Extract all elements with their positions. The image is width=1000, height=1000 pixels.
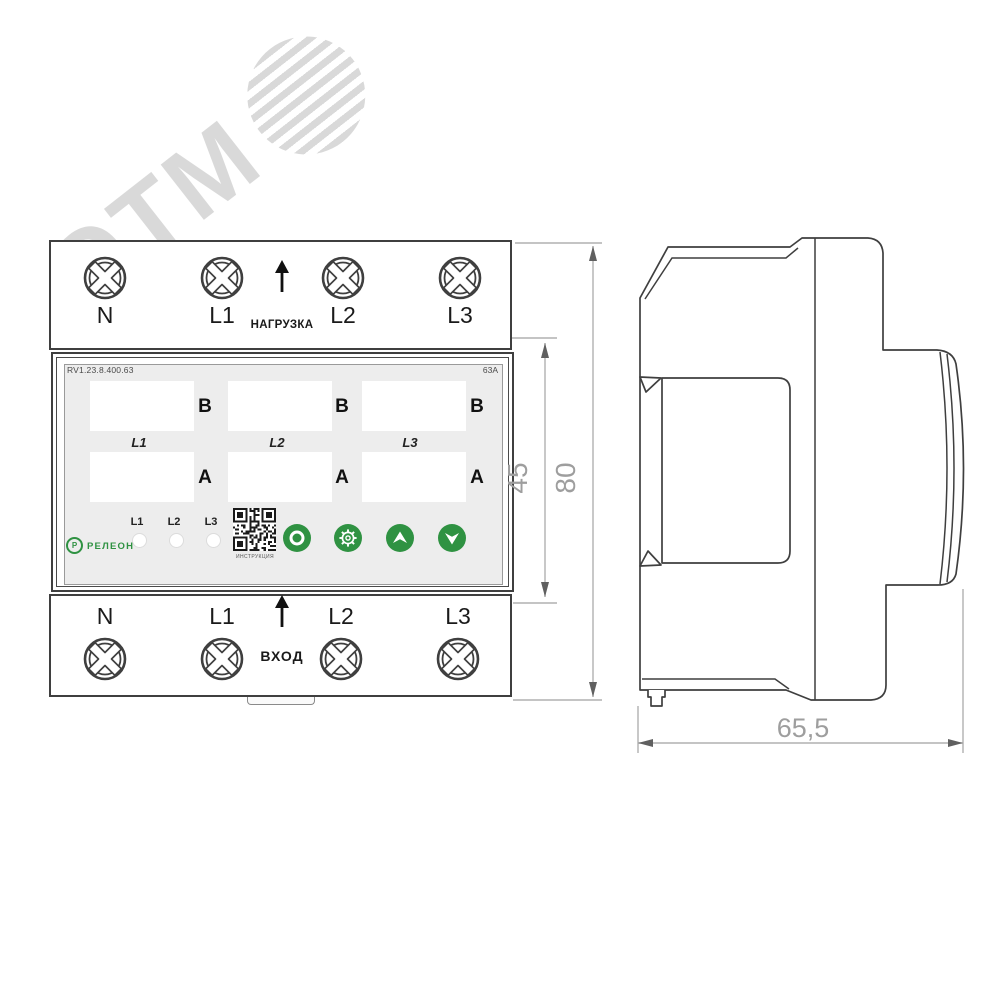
voltage-unit-label: В [332, 396, 352, 418]
arrow-up-icon [390, 528, 410, 548]
terminal-label-l3: L3 [423, 603, 493, 630]
phase-label-l3: L3 [390, 435, 430, 450]
screw-terminal-icon [437, 255, 483, 301]
led-indicator-l2 [169, 533, 184, 548]
led-label-l2: L2 [161, 516, 187, 528]
screw-terminal-icon [199, 255, 245, 301]
led-indicator-l1 [132, 533, 147, 548]
side-clip-tab [648, 690, 665, 706]
down-button[interactable] [438, 524, 466, 552]
led-label-l1: L1 [124, 516, 150, 528]
current-display-l2 [228, 452, 332, 502]
phase-label-l2: L2 [257, 435, 297, 450]
current-display-l1 [90, 452, 194, 502]
terminal-label-n: N [70, 302, 140, 329]
voltage-unit-label: В [467, 396, 487, 418]
dimension-depth-label: 65,5 [777, 713, 830, 743]
technical-drawing: ЭТМ N L1 L2 L3 НАГРУЗКА RV1.23.8.400.63 … [0, 0, 1000, 1000]
voltage-display-l2 [228, 381, 332, 431]
load-section-label: НАГРУЗКА [237, 319, 327, 331]
up-button[interactable] [386, 524, 414, 552]
ring-icon [287, 528, 307, 548]
screw-terminal-icon [82, 255, 128, 301]
brand-name: РЕЛЕОН [87, 541, 134, 552]
current-unit-label: А [467, 467, 487, 489]
voltage-display-l1 [90, 381, 194, 431]
terminal-label-n: N [70, 603, 140, 630]
input-section-label: ВХОД [247, 648, 317, 664]
screw-terminal-icon [199, 636, 245, 682]
qr-code [233, 508, 276, 551]
gear-icon [338, 528, 358, 548]
voltage-display-l3 [362, 381, 466, 431]
arrow-down-icon [442, 528, 462, 548]
dimension-80-label: 80 [550, 462, 581, 493]
terminal-label-l2: L2 [306, 603, 376, 630]
input-direction-arrow-icon [273, 595, 291, 628]
led-label-l3: L3 [198, 516, 224, 528]
current-unit-label: А [195, 467, 215, 489]
dimension-45-label: 45 [505, 462, 533, 493]
settings-button[interactable] [334, 524, 362, 552]
current-unit-label: А [332, 467, 352, 489]
current-rating: 63A [466, 365, 498, 375]
brand-logo-icon: Р [66, 537, 83, 554]
current-display-l3 [362, 452, 466, 502]
phase-label-l1: L1 [119, 435, 159, 450]
height-dimensions: 45 80 [505, 228, 620, 723]
terminal-label-l3: L3 [425, 302, 495, 329]
load-direction-arrow-icon [273, 260, 291, 293]
screw-terminal-icon [318, 636, 364, 682]
side-din-recess [662, 378, 790, 563]
voltage-unit-label: В [195, 396, 215, 418]
qr-code-label: ИНСТРУКЦИЯ [226, 554, 284, 560]
side-view: 65,5 [618, 228, 983, 763]
power-button[interactable] [283, 524, 311, 552]
led-indicator-l3 [206, 533, 221, 548]
screw-terminal-icon [82, 636, 128, 682]
terminal-label-l1: L1 [187, 603, 257, 630]
model-number: RV1.23.8.400.63 [67, 365, 134, 375]
screw-terminal-icon [320, 255, 366, 301]
screw-terminal-icon [435, 636, 481, 682]
